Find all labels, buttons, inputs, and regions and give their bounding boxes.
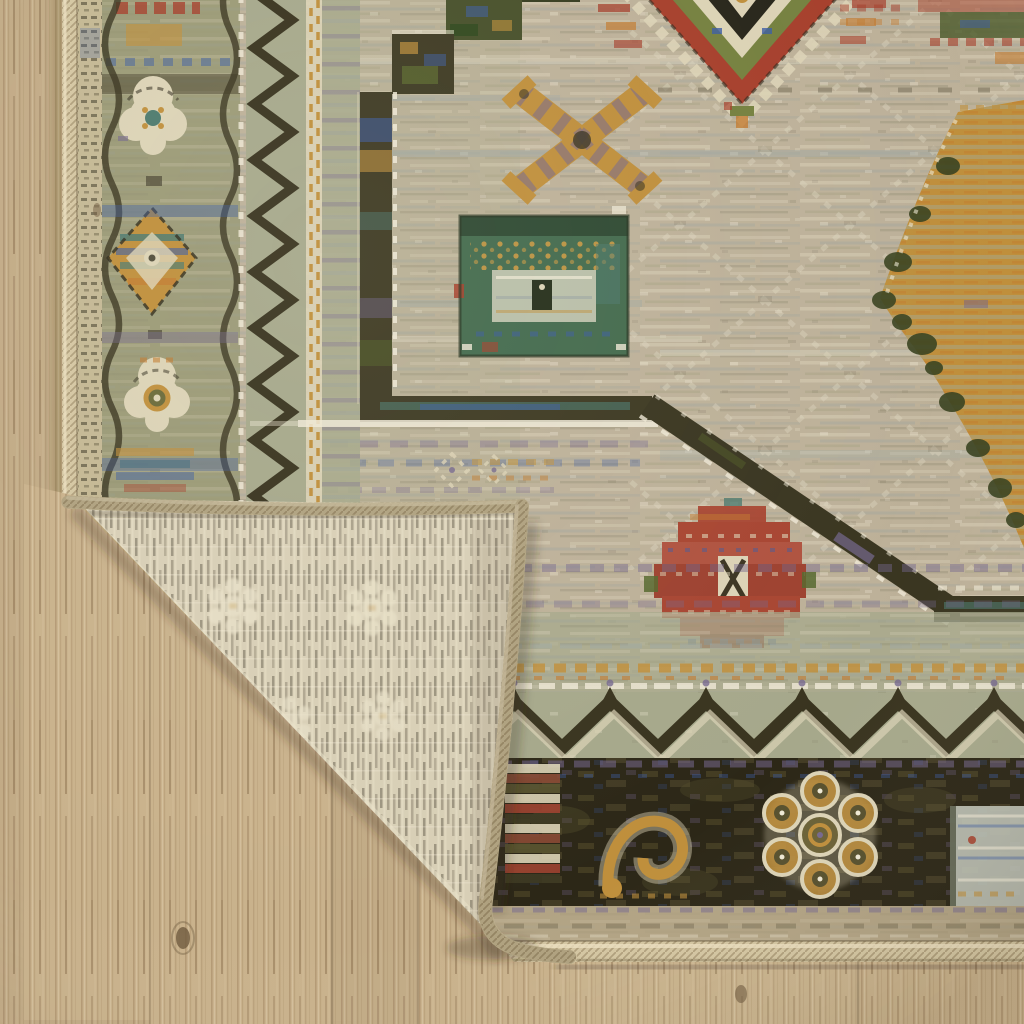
rug-product-photo	[0, 0, 1024, 1024]
photo-canvas	[0, 0, 1024, 1024]
lighting-vignette	[0, 0, 1024, 1024]
